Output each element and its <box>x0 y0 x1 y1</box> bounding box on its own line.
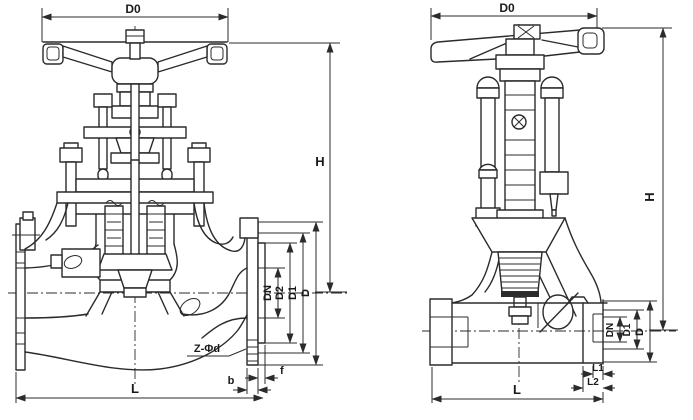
label-left-bolt-holes: Z-Φd <box>194 343 220 355</box>
label-right-H: H <box>642 192 657 201</box>
label-right-DN: DN <box>605 323 616 337</box>
label-right-L2: L2 <box>587 377 599 388</box>
label-left-D: D <box>300 289 312 297</box>
label-right-D: D <box>634 328 646 336</box>
label-right-L1: L1 <box>592 363 604 374</box>
label-left-D1: D1 <box>287 286 299 300</box>
label-right-D1: D1 <box>622 323 633 336</box>
right-valve-bonnet-and-seat <box>452 218 601 332</box>
valve-dimension-drawing: D0 H DN D2 D1 D Z-Φd <box>0 0 693 420</box>
drawing-canvas: D0 H DN D2 D1 D Z-Φd <box>0 0 693 420</box>
left-valve-handwheel <box>43 30 227 92</box>
label-left-b: b <box>228 375 235 387</box>
label-left-D2: D2 <box>274 286 286 300</box>
right-valve-section: D0 H DN D1 D L1 <box>422 1 678 403</box>
label-right-D0: D0 <box>499 1 515 15</box>
left-valve-section: D0 H DN D2 D1 D Z-Φd <box>8 2 348 403</box>
label-right-L: L <box>513 382 521 397</box>
label-left-D0: D0 <box>125 2 141 16</box>
right-valve-yoke <box>476 39 568 226</box>
label-left-L: L <box>131 381 139 396</box>
label-left-DN: DN <box>262 285 274 301</box>
label-left-f: f <box>280 365 284 377</box>
label-left-H: H <box>315 154 324 169</box>
